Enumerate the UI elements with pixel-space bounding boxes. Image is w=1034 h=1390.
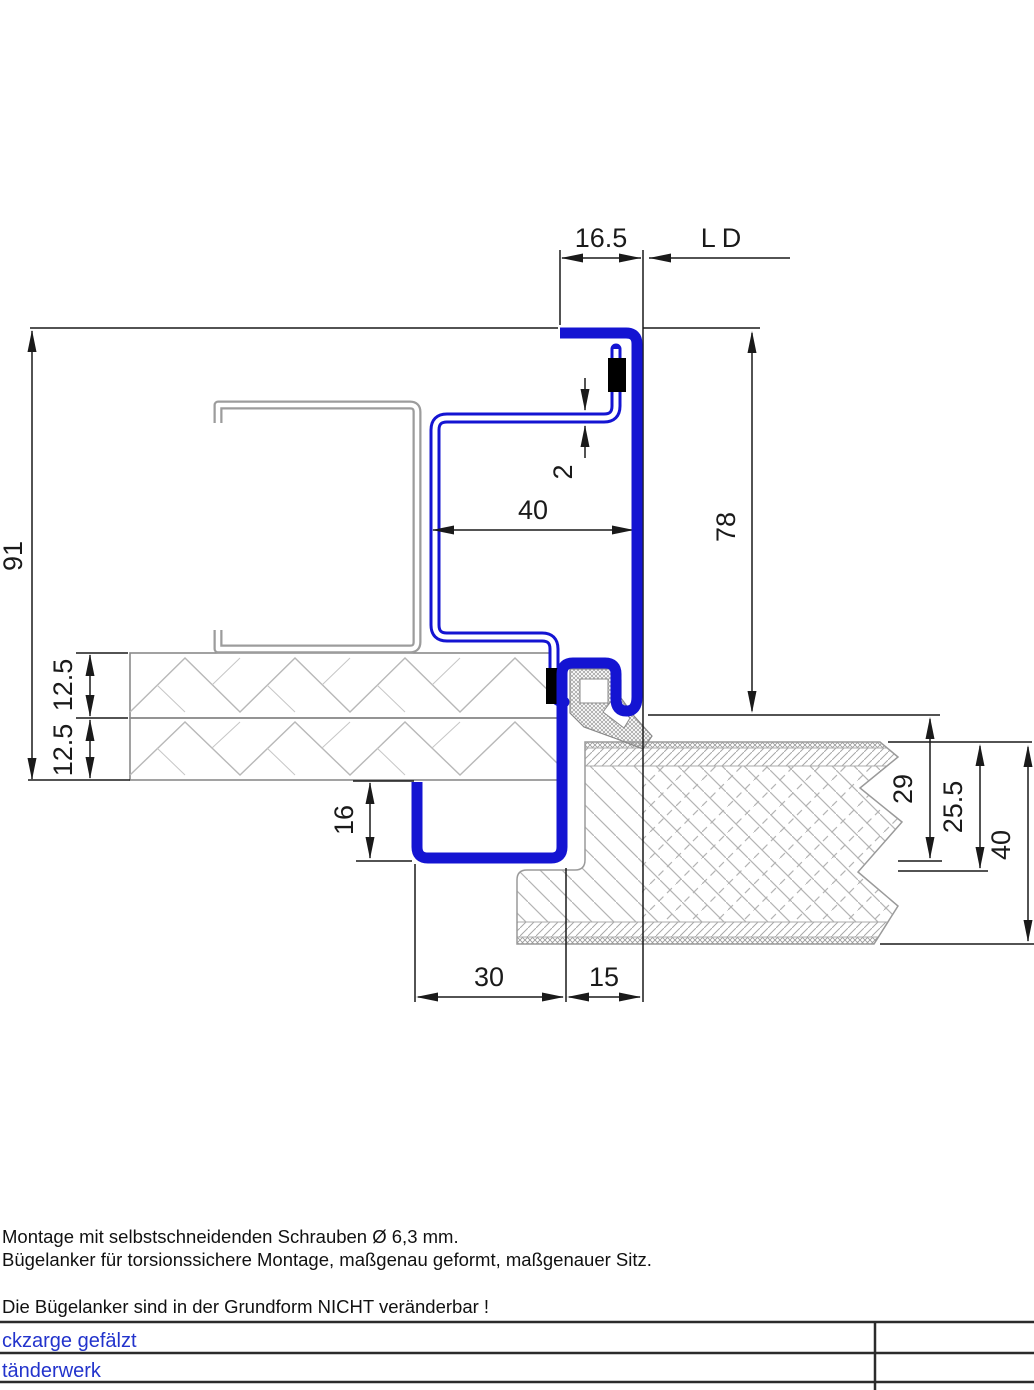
dim-16: 16: [329, 782, 375, 859]
dim-label-29: 29: [888, 774, 918, 804]
dim-label-16: 16: [329, 805, 359, 835]
dim-label-30: 30: [474, 962, 504, 992]
dim-30: 30: [416, 962, 564, 1002]
dim-16-5: 16.5: [561, 223, 641, 263]
stud-profile: [218, 405, 417, 649]
door-facing-bottom: [500, 922, 920, 937]
dim-15: 15: [567, 962, 641, 1002]
dim-91: 91: [0, 330, 37, 780]
dim-78: 78: [711, 331, 757, 713]
notes: Montage mit selbstschneidenden Schrauben…: [2, 1226, 652, 1317]
stud-outer: [218, 405, 417, 649]
dim-2: 2: [548, 378, 590, 480]
bracket-core: [435, 349, 616, 702]
dim-label-15: 15: [589, 962, 619, 992]
dim-label-25-5: 25.5: [938, 781, 968, 834]
board-layer-1: [130, 653, 558, 718]
seal-hollow: [580, 679, 608, 703]
anchor-bracket: [435, 349, 616, 702]
dim-label-12-5-a: 12.5: [48, 659, 78, 712]
dim-label-91: 91: [0, 541, 28, 571]
board1-hatch-2: [157, 658, 460, 712]
dim-label-16-5: 16.5: [575, 223, 628, 253]
dim-label-40-stud: 40: [518, 495, 548, 525]
note-line-3: Die Bügelanker sind in der Grundform NIC…: [2, 1296, 489, 1317]
screw-top: [608, 358, 626, 392]
bracket-outer: [435, 349, 616, 702]
title-block-row2-label: tänderwerk: [2, 1360, 102, 1382]
note-line-2: Bügelanker für torsionssichere Montage, …: [2, 1249, 652, 1270]
door-core-dashed: [642, 766, 922, 922]
dim-label-12-5-b: 12.5: [48, 724, 78, 777]
board2-hatch: [130, 722, 558, 775]
dim-25-5: 25.5: [938, 744, 985, 869]
title-block-row1-label: ckzarge gefälzt: [2, 1330, 137, 1352]
dim-label-78: 78: [711, 512, 741, 542]
dim-29: 29: [888, 717, 935, 859]
dim-12-5-b: 12.5: [48, 719, 95, 779]
board1-hatch: [130, 658, 558, 712]
dim-12-5-a: 12.5: [48, 654, 95, 717]
dim-40-door: 40: [986, 745, 1033, 942]
dim-label-ld: LD: [701, 223, 748, 253]
dim-label-2: 2: [548, 464, 578, 479]
wall-plasterboard: [130, 653, 558, 780]
board2-hatch-2: [157, 722, 460, 775]
title-block: ckzarge gefälzt tänderwerk: [0, 1322, 1034, 1390]
stud-core: [218, 405, 417, 649]
title-block-rows: [0, 1322, 1034, 1382]
note-line-1: Montage mit selbstschneidenden Schrauben…: [2, 1226, 459, 1247]
cad-drawing-page: 16.5 LD 91 12.5 12.5: [0, 0, 1034, 1390]
dim-ld: LD: [649, 223, 790, 263]
technical-drawing: 16.5 LD 91 12.5 12.5: [0, 0, 1034, 1390]
dim-label-40-door: 40: [986, 830, 1016, 860]
dim-40-stud: 40: [432, 495, 634, 535]
